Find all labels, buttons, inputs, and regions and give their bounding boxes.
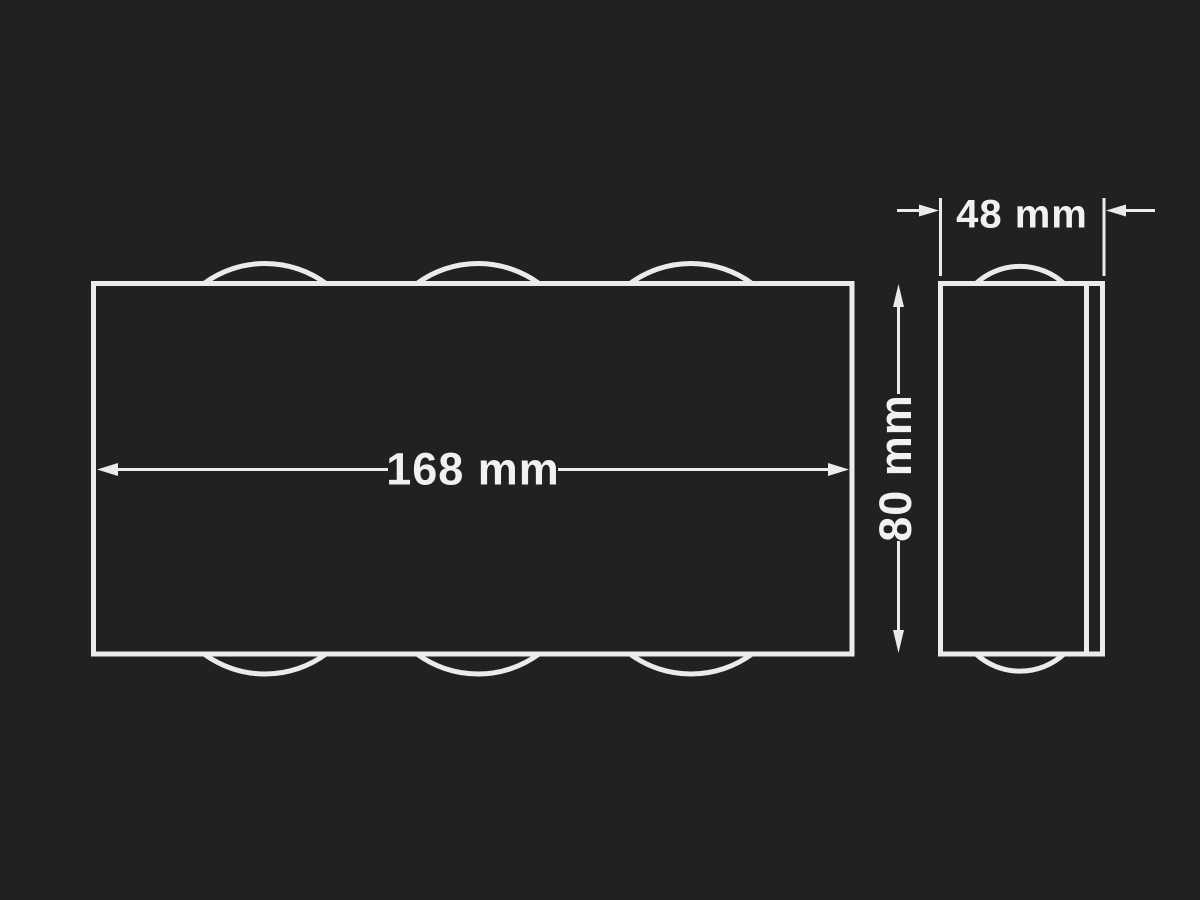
front-bottom-bump-arc-2: [417, 654, 539, 674]
front-view: 168 mm: [94, 263, 853, 674]
width-arrowhead-left: [97, 463, 118, 476]
side-bottom-bump-arc: [976, 654, 1064, 671]
side-view-outline: [941, 284, 1103, 655]
front-bottom-bump-arc-1: [204, 654, 326, 674]
width-arrowhead-right: [828, 463, 849, 476]
depth-arrowhead-left: [919, 205, 939, 217]
height-dimension-label: 80 mm: [870, 394, 921, 542]
front-top-bump-arc-1: [204, 263, 326, 283]
height-arrowhead-down: [893, 630, 904, 653]
side-view: 48 mm 80 mm: [870, 193, 1155, 672]
width-dimension-label: 168 mm: [386, 444, 560, 495]
front-bottom-bump-arc-3: [630, 654, 752, 674]
front-top-bump-arc-3: [630, 263, 752, 283]
height-dimension: 80 mm: [870, 284, 921, 653]
drawing-canvas: 168 mm 48 mm: [0, 0, 1200, 900]
depth-dimension: 48 mm: [897, 193, 1155, 277]
front-top-bump-arc-2: [417, 263, 539, 283]
depth-arrowhead-right: [1106, 205, 1126, 217]
width-dimension: 168 mm: [97, 444, 849, 495]
depth-dimension-label: 48 mm: [956, 193, 1088, 237]
height-arrowhead-up: [893, 284, 904, 307]
side-top-bump-arc: [976, 266, 1064, 283]
dimension-drawing: 168 mm 48 mm: [0, 0, 1200, 900]
